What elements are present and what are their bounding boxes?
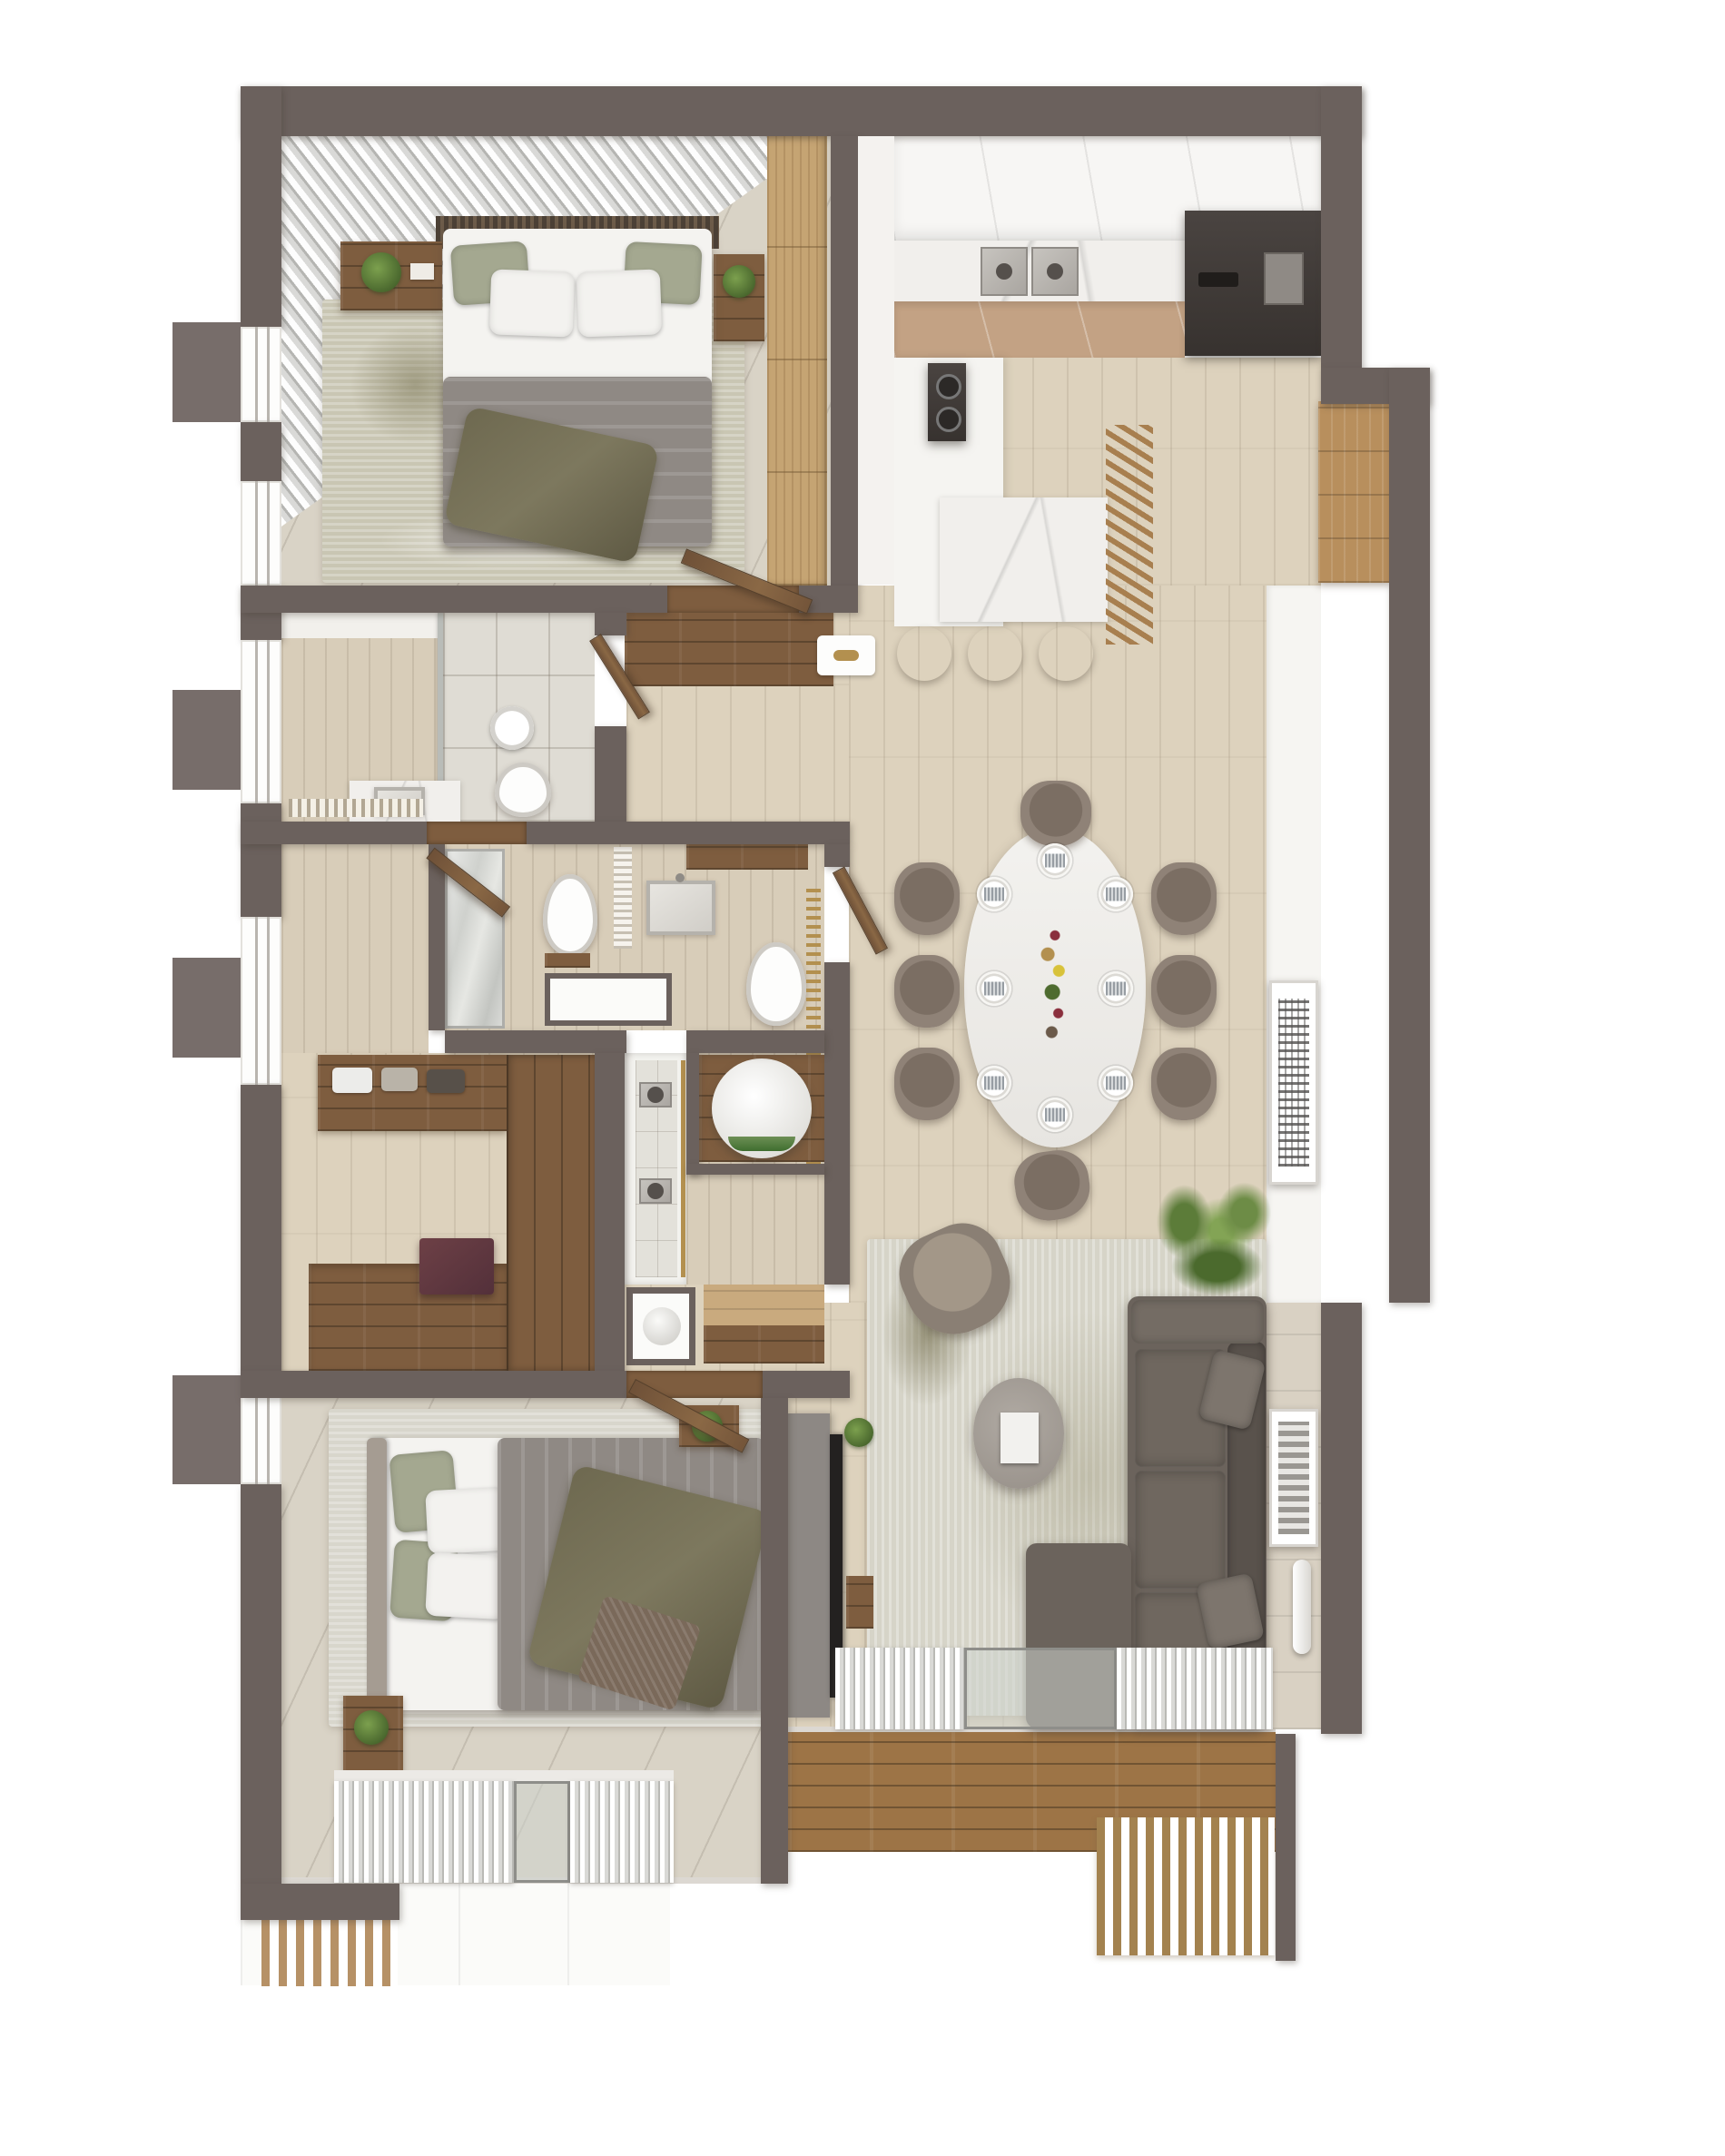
palm-plant bbox=[1139, 1162, 1289, 1312]
wall-boiler-closet bbox=[686, 1164, 824, 1175]
wall-pier bbox=[172, 690, 241, 790]
ensuite-toilet bbox=[543, 874, 597, 956]
closet-wardrobe-right-arm bbox=[507, 1055, 595, 1371]
wc-toilet bbox=[746, 942, 806, 1026]
living-wall-art-abstract bbox=[1278, 1422, 1309, 1534]
folded-clothes-icon bbox=[427, 1069, 465, 1093]
appliance-handle bbox=[1198, 272, 1238, 287]
kitchen-base-cabinets bbox=[894, 301, 1185, 358]
master-wardrobe bbox=[767, 136, 827, 586]
kitchen-tall-wood-cabinet bbox=[1318, 401, 1391, 583]
wall-west bbox=[241, 422, 281, 481]
wall-bathroom1-east bbox=[595, 726, 626, 822]
kitchen-west-wall-face bbox=[858, 136, 894, 585]
pillow bbox=[489, 269, 575, 337]
place-setting bbox=[973, 968, 1015, 1009]
wall-west bbox=[241, 1484, 281, 1884]
place-setting bbox=[1034, 1094, 1076, 1136]
wall-bedroom2-north bbox=[763, 1371, 850, 1398]
place-setting bbox=[1034, 840, 1076, 881]
vestibule-walnut-board bbox=[704, 1325, 824, 1363]
window-west-1 bbox=[241, 327, 281, 422]
wall-bedroom2-east bbox=[761, 1398, 788, 1884]
wall-mid-horizontal bbox=[241, 822, 427, 844]
rain-shower-head-icon bbox=[490, 706, 534, 750]
sink-bowl-right bbox=[1031, 247, 1079, 296]
bedroom2-sheer-track bbox=[334, 1770, 674, 1781]
breakfast-bar bbox=[940, 497, 1108, 622]
place-setting bbox=[1095, 968, 1137, 1009]
hob-burner-icon bbox=[936, 407, 961, 432]
wall-boiler-closet bbox=[686, 1053, 699, 1175]
media-shelf-candles bbox=[846, 1576, 873, 1629]
nightstand-right-plant-icon bbox=[723, 265, 755, 298]
window-west-3 bbox=[241, 640, 281, 803]
wall-bedroom2-north bbox=[241, 1371, 626, 1398]
shower-head-icon bbox=[639, 1178, 672, 1204]
living-curtain-right bbox=[1117, 1648, 1273, 1729]
towel-radiator bbox=[614, 847, 632, 949]
floor-lamp bbox=[1293, 1560, 1311, 1654]
balcony-bench-slats bbox=[1097, 1817, 1275, 1955]
living-sliding-door-glass bbox=[964, 1648, 1117, 1729]
wall-bedroom1-kitchen bbox=[831, 136, 858, 586]
sofa-seat-cushion bbox=[1135, 1471, 1226, 1589]
place-setting bbox=[973, 873, 1015, 915]
dining-chair bbox=[1151, 1048, 1217, 1120]
floor-plan-canvas bbox=[0, 0, 1725, 2156]
bedroom2-curtain-left bbox=[334, 1781, 514, 1883]
bedroom2-sliding-door-glass bbox=[514, 1781, 570, 1883]
sink-bowl-left bbox=[981, 247, 1028, 296]
wall-ensuite-south bbox=[686, 1030, 824, 1053]
shower-brass-trim bbox=[681, 1060, 685, 1277]
wall-west bbox=[241, 1085, 281, 1380]
pillow bbox=[425, 1487, 508, 1555]
ensuite-walnut-shelf bbox=[686, 844, 808, 870]
magazine-icon bbox=[1000, 1413, 1039, 1463]
bedroom2-dresser-plant-icon bbox=[354, 1710, 389, 1745]
wall-pier bbox=[172, 322, 241, 422]
table-centerpiece bbox=[1039, 926, 1071, 1044]
pillow bbox=[577, 269, 662, 337]
bar-stool bbox=[1039, 626, 1093, 681]
faucet-icon bbox=[675, 873, 685, 882]
living-curtain-left bbox=[835, 1648, 964, 1729]
wall-ensuite-south bbox=[445, 1030, 626, 1053]
decor-sphere-icon bbox=[643, 1307, 681, 1345]
place-setting bbox=[973, 1062, 1015, 1104]
wall-pier bbox=[172, 1375, 241, 1484]
shower-head-icon bbox=[639, 1082, 672, 1108]
storage-niche bbox=[545, 973, 672, 1026]
bar-stool bbox=[897, 626, 951, 681]
hob-burner-icon bbox=[936, 374, 961, 399]
sofa-armrest bbox=[1131, 1300, 1264, 1344]
wall-bathroom1-east bbox=[595, 613, 626, 635]
nightstand-tray-icon bbox=[410, 263, 434, 280]
wall-east-lower bbox=[1321, 1303, 1362, 1734]
dining-chair bbox=[1020, 781, 1091, 846]
place-setting bbox=[1095, 873, 1137, 915]
wall-closet-shower bbox=[595, 1053, 625, 1371]
appliance-control-panel bbox=[1264, 252, 1304, 305]
wall-bedroom1-south bbox=[241, 586, 667, 613]
tv-media-panel bbox=[788, 1413, 830, 1718]
wall-east-mid bbox=[1389, 368, 1430, 1303]
folded-clothes-icon bbox=[381, 1068, 418, 1091]
wall-closet-ensuite bbox=[429, 844, 445, 1030]
wall-suite-east bbox=[824, 844, 850, 867]
wall-west bbox=[241, 86, 281, 327]
closet-burgundy-ottoman bbox=[419, 1238, 494, 1295]
nightstand-plant-icon bbox=[361, 252, 401, 292]
dining-chair bbox=[1151, 955, 1217, 1028]
wall-east-upper bbox=[1321, 86, 1362, 399]
bathroom1-toilet bbox=[495, 763, 551, 817]
window-west-2 bbox=[241, 481, 281, 586]
dining-chair bbox=[894, 1048, 960, 1120]
closet-shelf-row bbox=[318, 1055, 507, 1131]
bedroom2-headboard bbox=[367, 1438, 387, 1710]
wall-mid-horizontal bbox=[527, 822, 850, 844]
dining-chair bbox=[894, 955, 960, 1028]
folded-clothes-icon bbox=[332, 1068, 372, 1093]
wine-rack-decor bbox=[545, 953, 590, 968]
water-heater-base bbox=[728, 1137, 795, 1151]
media-shelf-plant-icon bbox=[844, 1418, 873, 1447]
dining-chair bbox=[894, 862, 960, 935]
door-mat-gold-detail bbox=[833, 650, 859, 661]
bar-wood-slat-screen bbox=[1106, 425, 1153, 645]
wall-pier bbox=[172, 958, 241, 1058]
closet-upper-floor bbox=[281, 844, 429, 1053]
ensuite-basin bbox=[646, 881, 715, 935]
closet-door-threshold bbox=[427, 822, 527, 844]
wall-balcony-east bbox=[1276, 1734, 1296, 1961]
wall-north bbox=[241, 86, 1362, 136]
vestibule-console bbox=[704, 1285, 824, 1328]
wall-west bbox=[241, 803, 281, 917]
place-setting bbox=[1095, 1062, 1137, 1104]
shower-drain-mat bbox=[289, 799, 423, 817]
dining-chair bbox=[1151, 862, 1217, 935]
window-west-4 bbox=[241, 917, 281, 1085]
bar-stool bbox=[968, 626, 1022, 681]
dining-wall-art-abstract bbox=[1278, 999, 1309, 1167]
wall-suite-east bbox=[824, 962, 850, 1285]
pillow bbox=[425, 1552, 508, 1620]
bedroom2-curtain-right bbox=[570, 1781, 674, 1883]
wall-bedroom2-south-stub bbox=[241, 1884, 399, 1920]
